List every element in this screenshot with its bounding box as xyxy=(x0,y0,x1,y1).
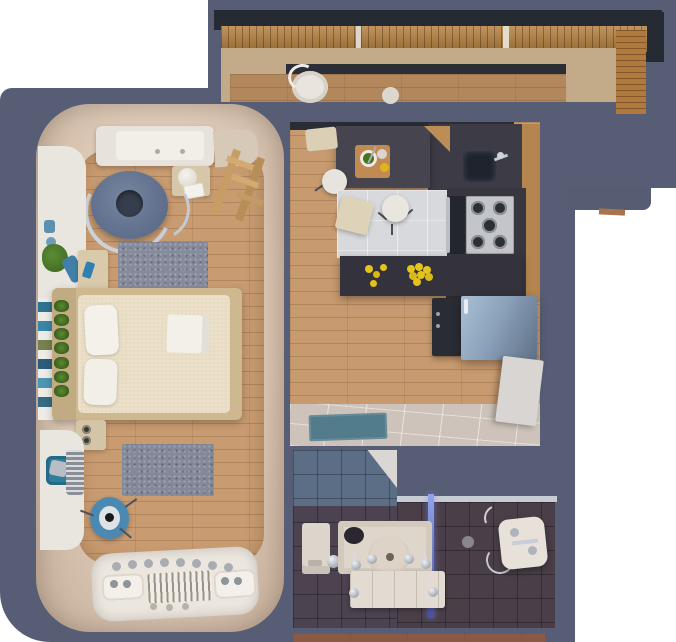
faucet-chrome-6 xyxy=(349,588,359,598)
pillow-1 xyxy=(84,304,120,356)
radiator-box-dot-2 xyxy=(123,580,131,588)
swivel-chair-hole xyxy=(116,190,143,217)
radiator-dot-2 xyxy=(128,560,137,569)
radiator-dot-8 xyxy=(224,563,233,572)
radiator-dot-6 xyxy=(192,559,201,568)
radiator-bottom-dot-1 xyxy=(150,603,157,610)
radiator-dot-7 xyxy=(208,561,217,570)
burner-2 xyxy=(493,201,507,215)
small-bowl xyxy=(377,149,387,159)
headboard-plant-5 xyxy=(54,357,69,369)
balcony-blinds-right xyxy=(616,30,646,114)
doormat xyxy=(309,413,388,442)
lemon-loose-3 xyxy=(380,264,387,271)
bath-wall-notch xyxy=(397,446,560,500)
bottom-wood-strip xyxy=(293,633,545,642)
radiator-dot-3 xyxy=(144,559,153,568)
rug-top xyxy=(118,242,208,290)
headboard-plant-2 xyxy=(54,314,69,326)
book-3 xyxy=(38,340,52,350)
bedroom-wardrobe-panel xyxy=(116,131,204,160)
faucet-chrome-1 xyxy=(351,560,361,570)
panel-detail-2 xyxy=(528,546,537,555)
headboard-plant-1 xyxy=(54,300,69,312)
drying-rack xyxy=(66,450,84,495)
faucet-chrome-4 xyxy=(421,559,431,569)
burner-5 xyxy=(482,218,497,233)
faucet-chrome-3 xyxy=(404,554,414,564)
cabinet-handle-2 xyxy=(436,324,440,328)
radiator-dot-5 xyxy=(176,558,185,567)
radiator-dot-4 xyxy=(160,558,169,567)
stool2-leg-3 xyxy=(391,224,393,235)
ledge-cup-1 xyxy=(44,220,55,233)
balcony-frame-right xyxy=(646,12,664,62)
radiator-box-dot-3 xyxy=(221,577,229,585)
bench-box xyxy=(305,126,338,151)
wall-right-step xyxy=(567,188,651,210)
radiator-slats xyxy=(147,570,212,603)
lemon-loose-2 xyxy=(373,271,380,278)
wardrobe-handle-2 xyxy=(180,149,185,154)
headboard-plant-3 xyxy=(54,328,69,340)
lemon-on-board xyxy=(380,163,389,172)
door-white xyxy=(495,356,544,427)
headboard-plant-4 xyxy=(54,342,69,354)
fridge xyxy=(461,296,537,360)
book-1 xyxy=(38,302,52,312)
headboard-plant-6 xyxy=(54,371,69,383)
headboard-plant-7 xyxy=(54,385,69,397)
book-6 xyxy=(38,397,52,407)
stool-round-2 xyxy=(382,195,409,222)
pillow-2 xyxy=(83,358,118,405)
basin-drain xyxy=(386,553,394,561)
faucet-chrome-2 xyxy=(367,554,377,564)
rug-bottom xyxy=(122,444,214,496)
burner-3 xyxy=(471,235,485,249)
oven-handle xyxy=(446,197,450,253)
radiator-box-dot-1 xyxy=(110,580,118,588)
radiator-box-left xyxy=(101,573,144,601)
oven xyxy=(448,196,465,254)
fridge-handle xyxy=(464,299,468,314)
jar-1 xyxy=(82,425,91,434)
lemon-pile-2 xyxy=(415,263,423,271)
tub-hole xyxy=(344,527,364,544)
radiator-dot-1 xyxy=(112,562,121,571)
book-2 xyxy=(38,321,52,331)
burner-1 xyxy=(471,201,485,215)
washing-machine xyxy=(302,523,330,574)
blanket xyxy=(166,314,209,353)
burner-4 xyxy=(493,235,507,249)
lemon-loose-1 xyxy=(365,265,373,273)
book-5 xyxy=(38,378,52,388)
lemon-pile-6 xyxy=(425,273,433,281)
floorplan-stage xyxy=(0,0,676,642)
book-4 xyxy=(38,359,52,369)
radiator-bottom-dot-2 xyxy=(166,604,173,611)
panel-detail-1 xyxy=(510,528,519,537)
balcony-vase xyxy=(382,87,399,104)
wardrobe-handle-1 xyxy=(155,149,160,154)
faucet-chrome-5 xyxy=(428,587,438,597)
radiator-bottom-dot-3 xyxy=(182,603,189,610)
lemon-pile-7 xyxy=(413,278,421,286)
radiator-box-dot-4 xyxy=(234,577,242,585)
drain-dot-right xyxy=(462,536,474,548)
lemon-loose-4 xyxy=(370,280,377,287)
sink xyxy=(463,151,496,182)
floor-lamp-center xyxy=(105,513,114,522)
wood-sliver-under-wall xyxy=(599,208,625,215)
faucet-base xyxy=(497,152,504,159)
cabinet-handle-1 xyxy=(436,312,440,316)
washer-knob xyxy=(308,560,322,566)
